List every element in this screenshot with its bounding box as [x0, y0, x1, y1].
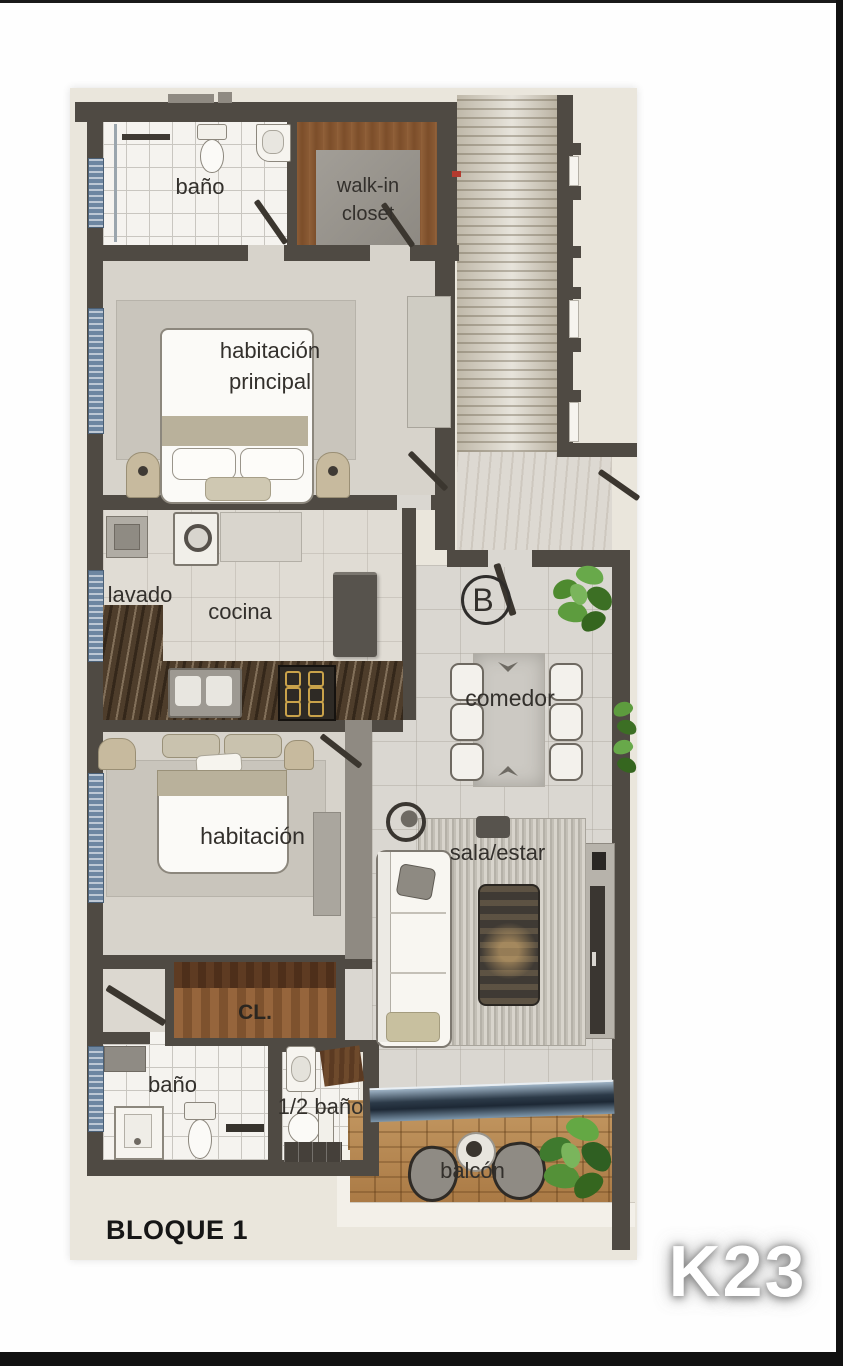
leaf [611, 699, 635, 719]
room-label-bathroom-top: baño [145, 172, 255, 203]
room-label-half-bath: 1/2 baño [268, 1092, 373, 1123]
neighbor-door-leaf [569, 156, 579, 186]
fridge [333, 572, 377, 657]
lobby-floor [457, 452, 612, 552]
neighbor-door-leaf [569, 300, 579, 338]
bed-band [157, 770, 287, 798]
leaf [583, 581, 617, 614]
plant [532, 1112, 616, 1206]
shower-glass [114, 124, 117, 242]
door-opening [248, 245, 284, 261]
room-label-bathroom-bottom: baño [130, 1070, 215, 1101]
closet-wood-top [174, 962, 336, 988]
pillow [172, 448, 236, 480]
wall-stub [571, 390, 581, 402]
wall [87, 1160, 379, 1176]
burner [308, 701, 324, 717]
vanity [104, 1046, 146, 1072]
sofa-throw [386, 1012, 440, 1042]
sink-bowl [175, 676, 201, 706]
toilet-bowl [188, 1119, 212, 1159]
nightstand [98, 738, 136, 770]
room-label-balcony: balcón [425, 1156, 520, 1187]
window [88, 1046, 104, 1132]
entry-label: B [461, 578, 505, 623]
wardrobe [407, 296, 451, 428]
toilet [197, 124, 227, 140]
toilet [184, 1102, 216, 1120]
sink-bowl [291, 1056, 311, 1082]
room-label-closet: CL. [174, 998, 336, 1027]
drain [134, 1138, 141, 1145]
leaf [612, 738, 635, 757]
wall-box [592, 852, 606, 870]
wall-stub [571, 186, 581, 200]
room-label-laundry: lavado [95, 580, 185, 611]
washer-door [184, 524, 212, 552]
coffee-table [478, 884, 540, 1006]
right-edge-bar [836, 0, 843, 1366]
room-label-dining: comedor [460, 682, 560, 714]
sofa-pillow [395, 863, 436, 901]
room-label-kitchen: cocina [192, 597, 288, 628]
floor-plan-image: B [0, 0, 843, 1366]
lamp [138, 466, 148, 476]
window [88, 773, 104, 903]
leaf [615, 717, 639, 737]
towel-bar [122, 134, 170, 140]
wall-stub [168, 94, 214, 103]
neighbor-door-leaf [569, 402, 579, 442]
dark-floor [284, 1142, 342, 1162]
sink-bowl [206, 676, 232, 706]
dining-chair [549, 743, 583, 781]
pillow [240, 448, 304, 480]
window [88, 158, 104, 228]
room-label-master: habitación principal [195, 336, 345, 398]
plant [613, 700, 637, 778]
counter [220, 512, 302, 562]
wall [437, 102, 457, 252]
counter-marble [103, 605, 163, 720]
room-label-walkin: walk-in closet [322, 172, 414, 228]
nightstand [284, 740, 314, 770]
wall [557, 443, 637, 457]
laundry-sink-bowl [114, 524, 140, 550]
room-label-living: sala/estar [440, 838, 555, 869]
wall [402, 508, 416, 720]
burner [308, 671, 324, 687]
top-edge-bar [0, 0, 843, 3]
burner [285, 701, 301, 717]
towel-bar [226, 1124, 264, 1132]
cushion [205, 477, 271, 501]
table-item [466, 1141, 482, 1157]
block-label: BLOQUE 1 [106, 1212, 306, 1250]
wall [75, 102, 457, 122]
bottom-edge-bar [0, 1352, 843, 1366]
wall-stub [571, 287, 581, 299]
leaf [615, 754, 639, 775]
toilet-bowl [200, 139, 224, 173]
unit-code: K23 [655, 1222, 820, 1323]
door-opening [370, 245, 410, 261]
window [88, 308, 104, 434]
decor-ring [386, 802, 426, 842]
stair-corridor-floor [457, 95, 557, 452]
lamp [328, 466, 338, 476]
hallway-floor2 [345, 959, 372, 1040]
wall-stub [571, 338, 581, 352]
wall-stub [571, 143, 581, 155]
sofa-seam [390, 912, 446, 914]
side-table [476, 816, 510, 838]
wall-stub [571, 246, 581, 258]
wood-shelf [320, 1045, 365, 1086]
room-label-bedroom: habitación [185, 820, 320, 852]
red-mark [452, 171, 461, 177]
bed-band [162, 416, 308, 446]
burner [285, 671, 301, 687]
plant [548, 562, 614, 638]
dining-chair [450, 743, 484, 781]
wall-stub [218, 92, 232, 103]
sofa-seam [390, 972, 446, 974]
door-handle [592, 952, 596, 966]
leaf [576, 1135, 617, 1176]
sink-bowl [262, 130, 284, 154]
